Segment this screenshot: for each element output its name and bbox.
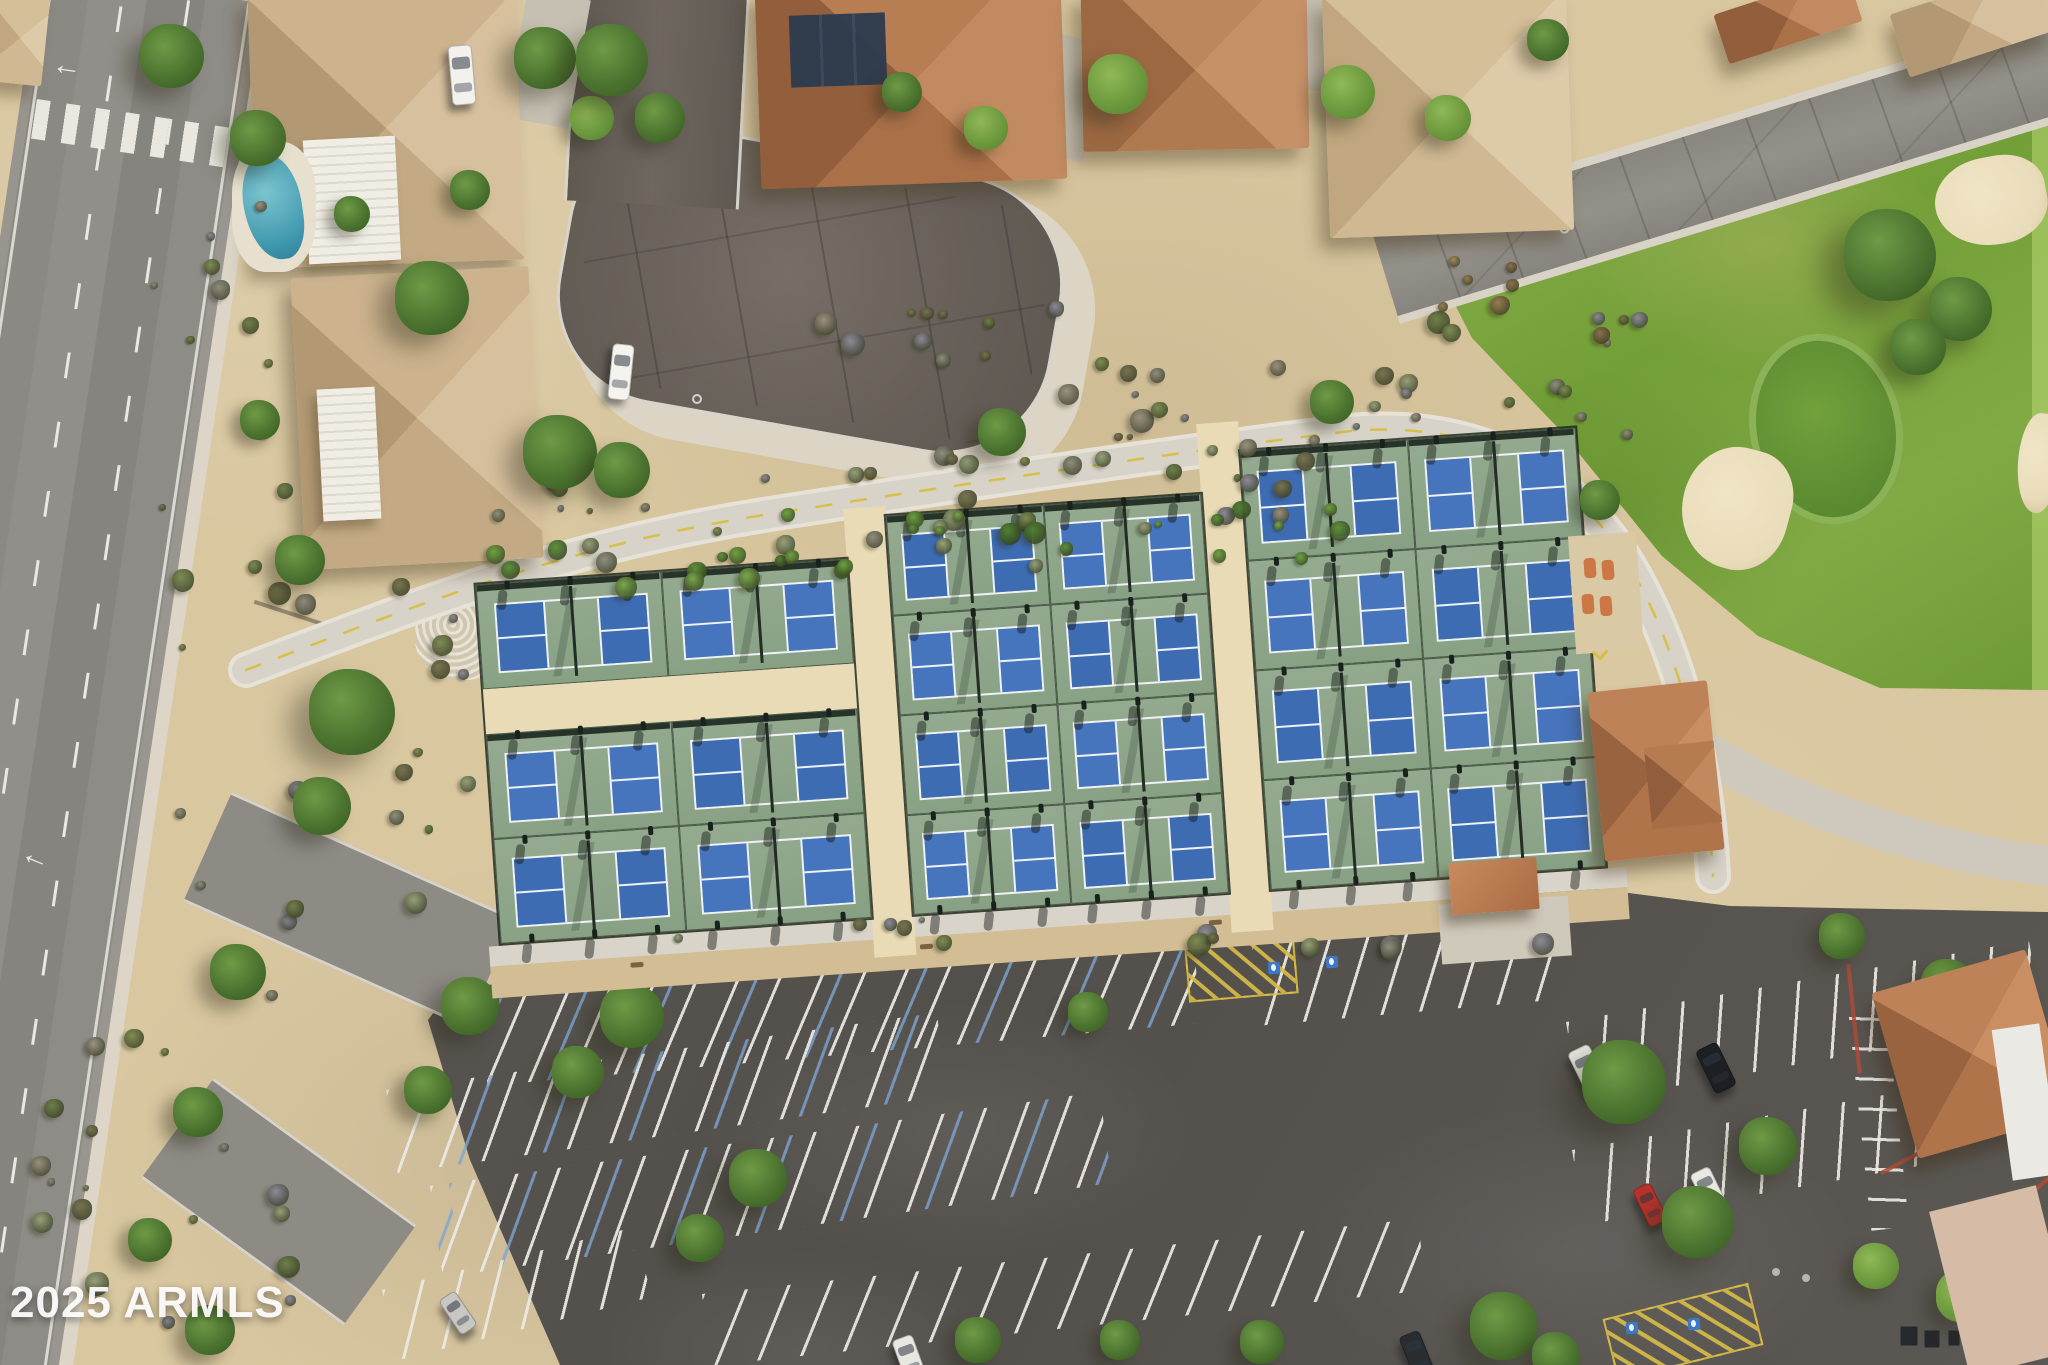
shrub — [946, 454, 957, 465]
shrub — [582, 538, 598, 554]
shrub — [1330, 521, 1349, 540]
shrub — [211, 280, 230, 299]
shrub — [405, 892, 427, 914]
shrub — [1506, 262, 1517, 273]
shrub — [458, 669, 469, 680]
shrub — [558, 505, 564, 511]
shrub — [981, 351, 991, 361]
shrub — [1506, 279, 1519, 292]
shrub — [48, 1178, 56, 1186]
shrub — [1213, 549, 1227, 563]
shrub — [1207, 445, 1217, 455]
shrub — [1049, 301, 1064, 316]
tree — [309, 669, 395, 755]
landscape-layer — [0, 0, 2048, 1365]
palm-tree — [1425, 95, 1471, 141]
shrub — [268, 582, 291, 605]
shrub — [781, 508, 795, 522]
tree — [1310, 380, 1354, 424]
tree — [240, 400, 280, 440]
tree — [395, 261, 469, 335]
shrub — [175, 808, 186, 819]
shrub — [460, 776, 476, 792]
shrub — [1274, 480, 1292, 498]
shrub — [936, 353, 951, 368]
tree — [275, 535, 325, 585]
shrub — [86, 1037, 105, 1056]
tree — [210, 944, 266, 1000]
shrub — [449, 614, 459, 624]
shrub — [815, 312, 837, 334]
watermark: 2025 ARMLS — [10, 1278, 285, 1328]
shrub — [266, 990, 278, 1002]
shrub — [1232, 501, 1250, 519]
shrub — [1622, 429, 1632, 439]
shrub — [1060, 542, 1074, 556]
tree — [1527, 19, 1569, 61]
shrub — [1151, 402, 1167, 418]
shrub — [1029, 559, 1043, 573]
shrub — [1375, 367, 1394, 386]
shrub — [1411, 413, 1420, 422]
shrub — [277, 483, 293, 499]
shrub — [939, 310, 949, 320]
shrub — [161, 1048, 169, 1056]
shrub — [864, 467, 877, 480]
tree — [128, 1218, 172, 1262]
shrub — [908, 524, 919, 535]
aerial-photo: ←← 2025 ARMLS — [0, 0, 2048, 1365]
shrub — [1296, 452, 1315, 471]
shrub — [86, 1125, 98, 1137]
shrub — [124, 1029, 144, 1049]
shrub — [908, 309, 916, 317]
shrub — [1295, 552, 1308, 565]
shrub — [242, 317, 258, 333]
shrub — [1166, 464, 1182, 480]
shrub — [1240, 474, 1258, 492]
shrub — [432, 635, 453, 656]
shrub — [179, 644, 186, 651]
shrub — [1309, 435, 1320, 446]
shrub — [189, 1215, 198, 1224]
shrub — [1150, 368, 1165, 383]
shrub — [392, 578, 410, 596]
shrub — [248, 560, 262, 574]
shrub — [914, 333, 932, 351]
shrub — [1463, 275, 1473, 285]
shrub — [207, 232, 215, 240]
tree — [334, 196, 370, 232]
shrub — [172, 569, 194, 591]
shrub — [729, 547, 746, 564]
shrub — [501, 561, 520, 580]
palm-tree — [1088, 54, 1148, 114]
shrub — [1369, 401, 1381, 413]
tree — [635, 93, 685, 143]
tree — [230, 110, 286, 166]
tree — [293, 777, 351, 835]
shrub — [492, 509, 505, 522]
shrub — [1504, 397, 1515, 408]
shrub — [285, 1295, 296, 1306]
tree — [1580, 480, 1620, 520]
shrub — [255, 201, 266, 212]
shrub — [953, 511, 964, 522]
shrub — [31, 1156, 51, 1176]
shrub — [295, 594, 316, 615]
palm-tree — [570, 96, 614, 140]
shrub — [1438, 302, 1448, 312]
shrub — [395, 764, 413, 782]
shrub — [897, 920, 913, 936]
shrub — [486, 545, 505, 564]
shrub — [1187, 933, 1210, 956]
shrub — [674, 934, 683, 943]
shrub — [1239, 439, 1257, 457]
shrub — [1211, 514, 1223, 526]
shrub — [936, 935, 952, 951]
tree — [140, 24, 204, 88]
shrub — [1619, 315, 1629, 325]
shrub — [1324, 503, 1337, 516]
shrub — [1576, 412, 1587, 423]
shrub — [641, 503, 649, 511]
shrub — [615, 577, 637, 599]
shrub — [999, 523, 1021, 545]
shrub — [884, 918, 897, 931]
shrub — [1270, 360, 1286, 376]
shrub — [267, 1184, 289, 1206]
shrub — [1024, 522, 1046, 544]
tree — [576, 24, 648, 96]
shrub — [848, 467, 863, 482]
shrub — [853, 918, 867, 932]
tree — [173, 1087, 223, 1137]
shrub — [1020, 457, 1029, 466]
shrub — [1095, 451, 1111, 467]
palm-tree — [1321, 65, 1375, 119]
shrub — [72, 1199, 92, 1219]
shrub — [841, 333, 864, 356]
shrub — [1127, 434, 1133, 440]
shrub — [1114, 433, 1123, 442]
shrub — [151, 282, 158, 289]
shrub — [1063, 456, 1082, 475]
shrub — [596, 552, 617, 573]
shrub — [413, 748, 423, 758]
shrub — [196, 881, 206, 891]
shrub — [274, 1206, 290, 1222]
shrub — [1401, 388, 1411, 398]
shrub — [685, 572, 704, 591]
shrub — [159, 504, 166, 511]
shrub — [785, 550, 799, 564]
shrub — [1095, 357, 1109, 371]
shrub — [1449, 256, 1460, 267]
shrub — [959, 455, 978, 474]
shrub — [761, 474, 770, 483]
shrub — [1058, 384, 1079, 405]
shrub — [738, 568, 760, 590]
tree — [978, 408, 1026, 456]
shrub — [1181, 414, 1189, 422]
tree — [514, 27, 576, 89]
shrub — [32, 1212, 53, 1233]
shrub — [44, 1099, 63, 1118]
shrub — [220, 1143, 229, 1152]
shrub — [866, 531, 883, 548]
shrub — [935, 526, 945, 536]
shrub — [984, 317, 995, 328]
shrub — [1155, 521, 1163, 529]
tree — [450, 170, 490, 210]
shrub — [204, 259, 220, 275]
shrub — [1120, 365, 1137, 382]
shrub — [1381, 939, 1402, 960]
shrub — [1559, 385, 1573, 399]
shrub — [1138, 522, 1152, 536]
shrub — [919, 917, 925, 923]
shrub — [1532, 933, 1554, 955]
shrub — [264, 359, 273, 368]
shrub — [713, 527, 722, 536]
shrub — [1353, 423, 1360, 430]
shrub — [277, 1256, 299, 1278]
shrub — [186, 336, 195, 345]
palm-tree — [964, 106, 1008, 150]
tree — [594, 442, 650, 498]
tree — [523, 415, 597, 489]
tree — [882, 72, 922, 112]
shrub — [548, 540, 567, 559]
shrub — [431, 660, 450, 679]
shrub — [1631, 312, 1648, 329]
shrub — [1274, 521, 1284, 531]
shrub — [1592, 312, 1605, 325]
shrub — [286, 900, 305, 919]
shrub — [958, 490, 977, 509]
shrub — [587, 508, 593, 514]
shrub — [1442, 324, 1461, 343]
shrub — [717, 552, 728, 563]
shrub — [921, 307, 933, 319]
shrub — [1301, 938, 1320, 957]
shrub — [1208, 933, 1219, 944]
shrub — [936, 538, 951, 553]
shrub — [1132, 391, 1139, 398]
shrub — [425, 825, 433, 833]
shrub — [837, 559, 853, 575]
shrub — [83, 1185, 89, 1191]
shrub — [1490, 296, 1510, 316]
shrub — [389, 810, 404, 825]
